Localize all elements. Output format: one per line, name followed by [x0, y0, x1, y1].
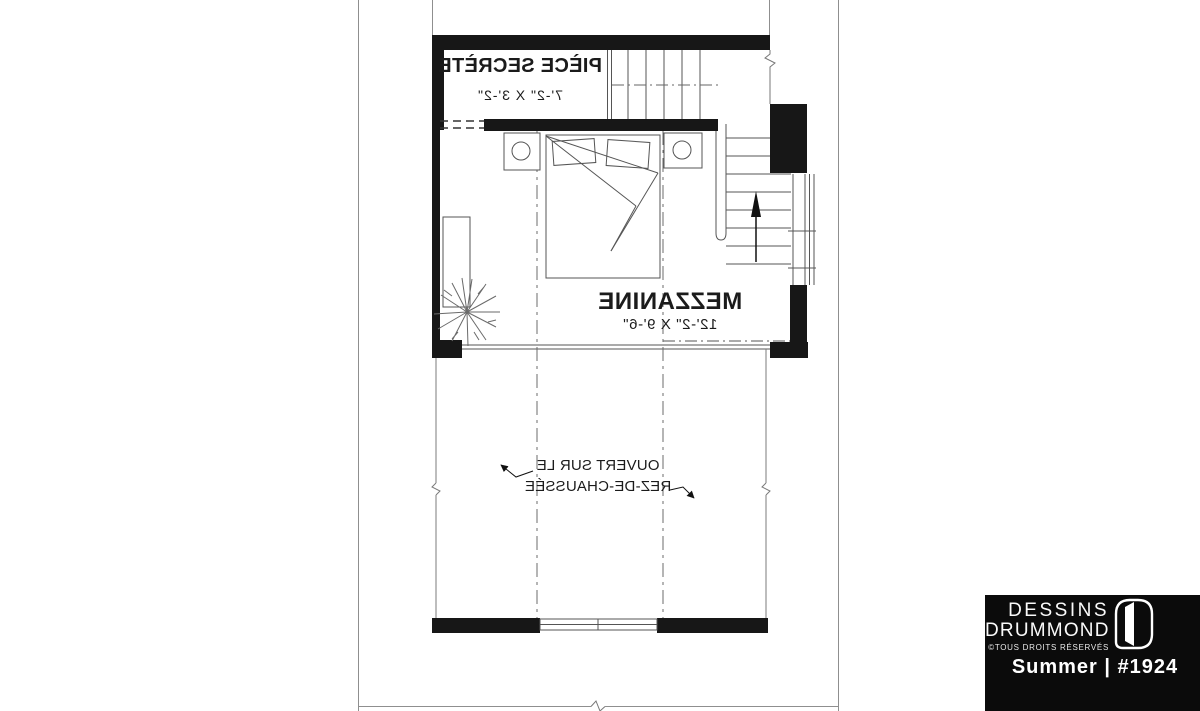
copyright-notice: ©TOUS DROITS RÉSERVÉS [985, 643, 1109, 652]
stair-direction-arrow [751, 191, 761, 262]
drummond-d-logo-icon [1113, 597, 1155, 651]
floor-plan-sheet: PIÈCE SECRÈTE 7'-2" X 3'-2" MEZZANINE 12… [0, 0, 1200, 711]
secret-room-label: PIÈCE SECRÈTE [430, 55, 610, 77]
brand-plate: DESSINS DRUMMOND ©TOUS DROITS RÉSERVÉS S… [985, 595, 1200, 711]
plan-title: Summer | #1924 [1005, 656, 1185, 679]
first-floor-window [540, 619, 657, 630]
secret-room-dashed-wall [440, 121, 484, 128]
secret-room-dimensions: 7'-2" X 3'-2" [430, 88, 610, 103]
wall-break-symbol [765, 50, 775, 104]
exterior-walls [432, 35, 808, 633]
dresser [443, 217, 470, 307]
nightstand-right [664, 133, 702, 168]
double-bed [546, 135, 660, 278]
mezzanine-floor-edge [440, 341, 790, 349]
staircase-upper-flight [608, 50, 719, 119]
open-to-below-note-line1: OUVERT SUR LE [520, 458, 676, 475]
brand-name-line2: DRUMMOND [985, 620, 1109, 642]
nightstand-left [504, 133, 540, 170]
mezzanine-dimensions: 12'-2" X 9'-6" [578, 317, 762, 334]
open-to-below-note-line2: REZ-DE-CHAUSSÉE [517, 479, 679, 496]
brand-name-line1: DESSINS [985, 600, 1109, 622]
mezzanine-label: MEZZANINE [578, 289, 762, 315]
